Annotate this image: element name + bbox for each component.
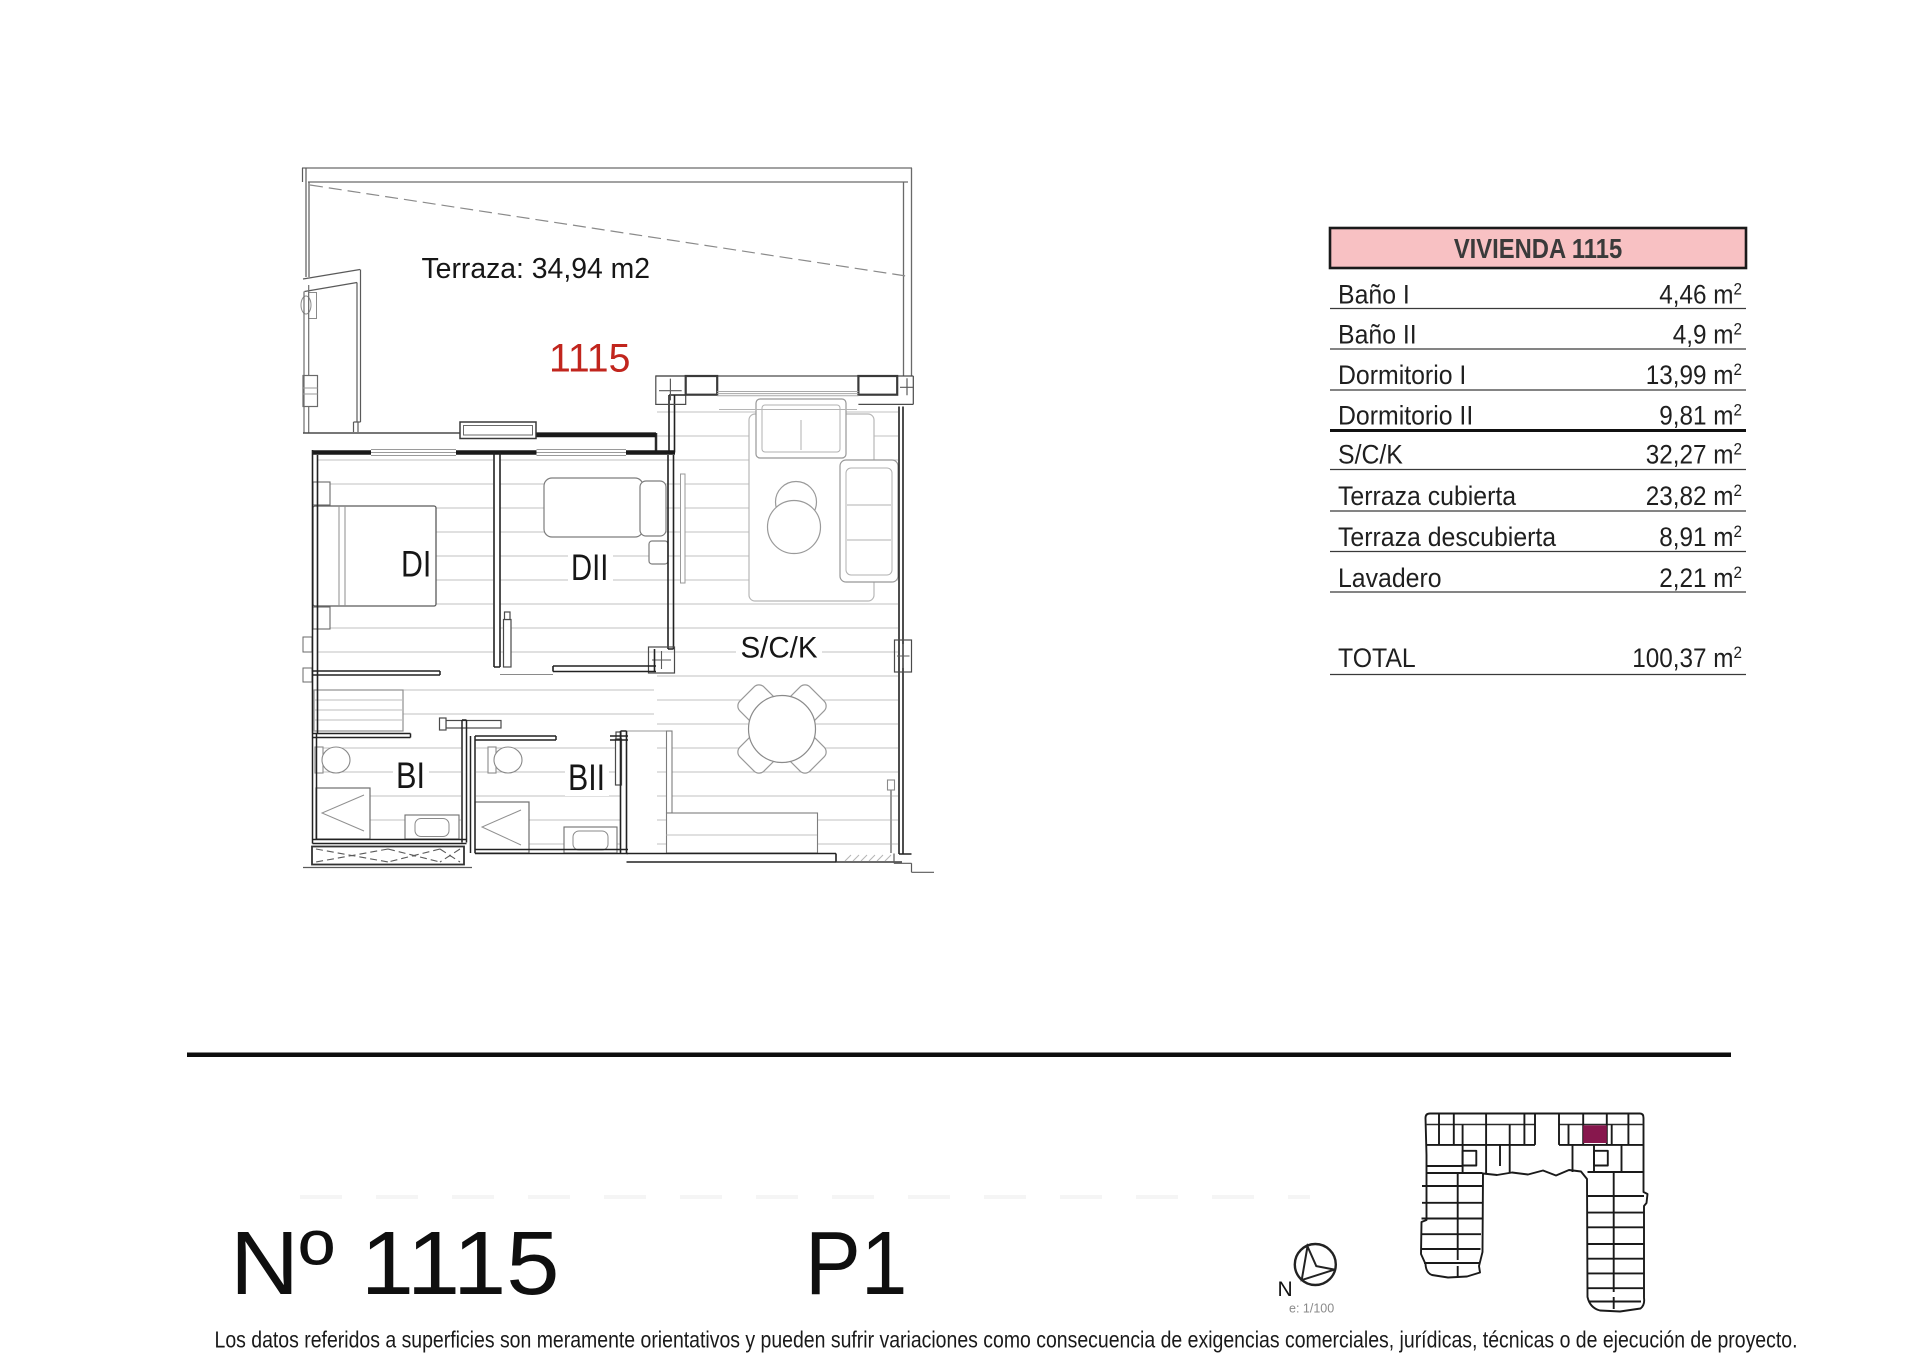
svg-text:Baño II: Baño II [1338, 321, 1417, 350]
svg-text:e: 1/100: e: 1/100 [1289, 1302, 1334, 1316]
svg-text:BII: BII [568, 757, 605, 799]
svg-text:Los datos referidos a superfic: Los datos referidos a superficies son me… [215, 1327, 1798, 1353]
svg-text:13,99 m2: 13,99 m2 [1646, 360, 1742, 390]
svg-text:4,9 m2: 4,9 m2 [1673, 320, 1742, 350]
svg-text:1115: 1115 [549, 336, 630, 380]
svg-text:4,46 m2: 4,46 m2 [1659, 280, 1742, 310]
svg-text:DII: DII [571, 548, 608, 589]
svg-text:P1: P1 [805, 1213, 907, 1313]
svg-text:23,82 m2: 23,82 m2 [1646, 481, 1742, 511]
svg-text:S/C/K: S/C/K [1338, 441, 1404, 470]
svg-text:Dormitorio II: Dormitorio II [1338, 402, 1473, 431]
svg-text:BI: BI [396, 755, 425, 796]
svg-text:DI: DI [401, 544, 431, 586]
svg-text:9,81 m2: 9,81 m2 [1659, 401, 1742, 431]
svg-text:S/C/K: S/C/K [741, 632, 818, 665]
svg-text:Terraza cubierta: Terraza cubierta [1338, 482, 1517, 511]
svg-text:Terraza descubierta: Terraza descubierta [1338, 523, 1557, 552]
svg-text:N: N [1278, 1278, 1293, 1301]
svg-text:Lavadero: Lavadero [1338, 564, 1442, 593]
svg-text:VIVIENDA 1115: VIVIENDA 1115 [1454, 232, 1622, 264]
svg-text:Nº 1115: Nº 1115 [230, 1213, 559, 1314]
svg-text:Dormitorio I: Dormitorio I [1338, 361, 1466, 390]
svg-text:32,27 m2: 32,27 m2 [1646, 440, 1742, 470]
svg-text:TOTAL: TOTAL [1338, 644, 1416, 673]
svg-text:Terraza: 34,94 m2: Terraza: 34,94 m2 [422, 253, 651, 285]
svg-text:100,37 m2: 100,37 m2 [1632, 643, 1742, 673]
svg-text:2,21 m2: 2,21 m2 [1659, 563, 1742, 593]
svg-text:8,91 m2: 8,91 m2 [1659, 522, 1742, 552]
svg-text:Baño I: Baño I [1338, 281, 1410, 310]
